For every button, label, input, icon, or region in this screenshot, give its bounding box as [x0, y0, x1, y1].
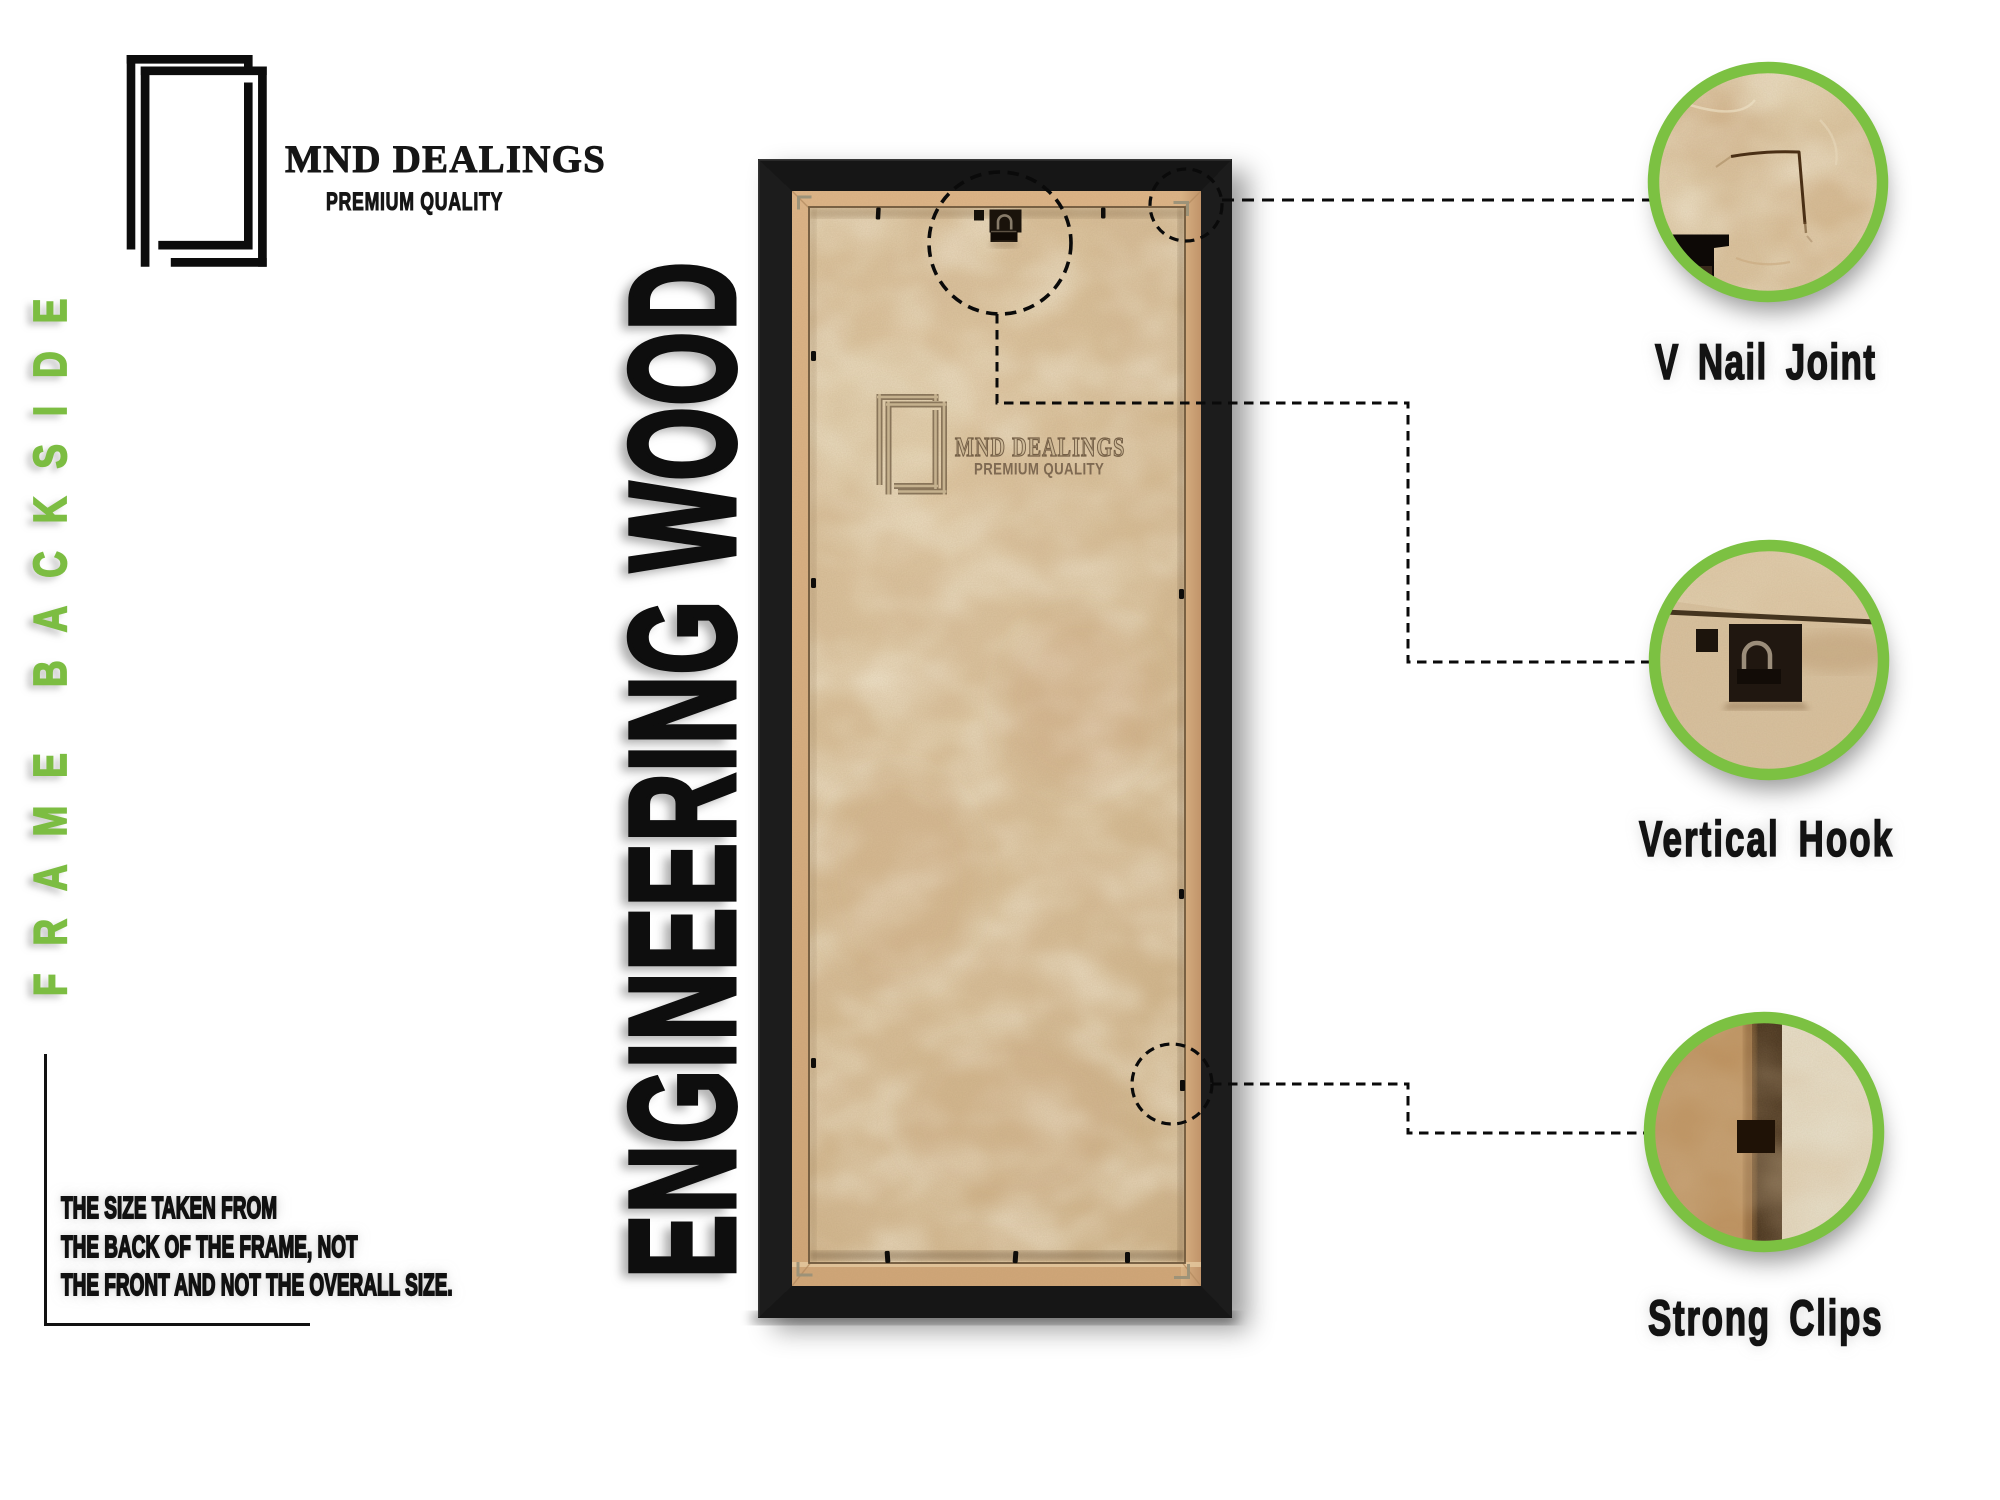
svg-text:MND DEALINGS: MND DEALINGS — [955, 433, 1125, 463]
svg-text:PREMIUM QUALITY: PREMIUM QUALITY — [974, 460, 1104, 479]
